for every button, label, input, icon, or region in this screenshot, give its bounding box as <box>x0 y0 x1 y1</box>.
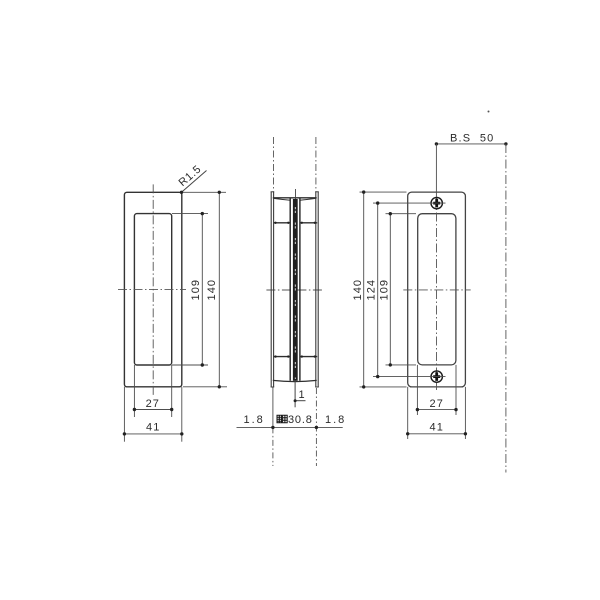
svg-text:30.8: 30.8 <box>288 414 313 426</box>
svg-text:140: 140 <box>206 279 218 301</box>
svg-text:41: 41 <box>146 422 160 434</box>
svg-text:1: 1 <box>299 389 306 401</box>
svg-text:27: 27 <box>146 398 160 410</box>
svg-text:1.8: 1.8 <box>325 414 346 426</box>
svg-text:B.S 50: B.S 50 <box>450 133 494 145</box>
svg-text:140: 140 <box>352 279 364 301</box>
svg-text:124: 124 <box>366 279 378 301</box>
svg-text:109: 109 <box>379 279 391 301</box>
svg-text:1.8: 1.8 <box>244 414 265 426</box>
svg-text:41: 41 <box>430 422 444 434</box>
svg-text:27: 27 <box>430 398 444 410</box>
svg-text:109: 109 <box>190 279 202 301</box>
